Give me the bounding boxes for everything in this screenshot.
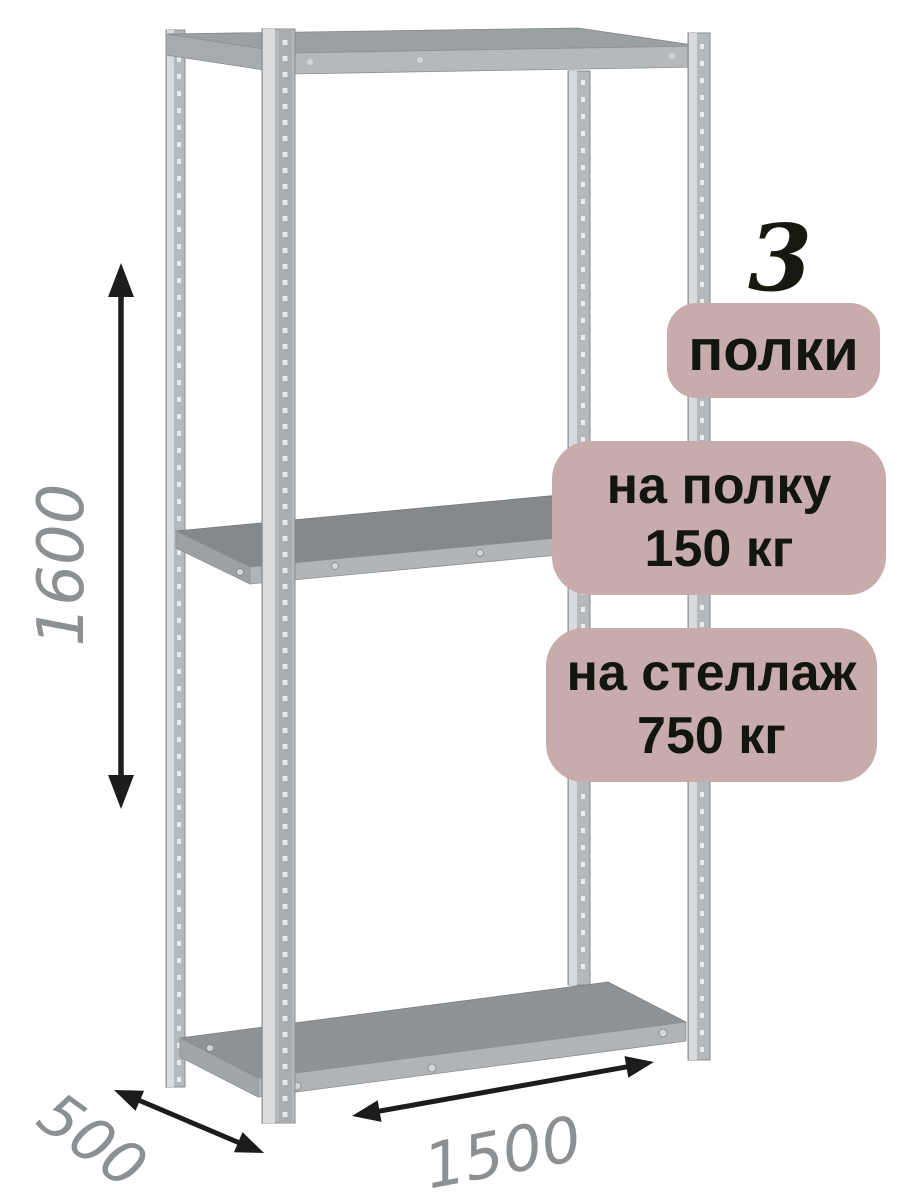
shelf-count-label: полки (688, 317, 859, 384)
height-dimension-label: 1600 (25, 455, 99, 675)
shelf-load-line1: на полку (607, 455, 832, 518)
product-image: 3 полки на полку 150 кг на стеллаж 750 к… (0, 0, 900, 1200)
rack-load-line2: 750 кг (637, 705, 786, 768)
rack-illustration (0, 0, 900, 1200)
rack-post-back-left (166, 30, 185, 1087)
shelf-bottom (180, 982, 686, 1097)
rack-load-badge: на стеллаж 750 кг (546, 628, 877, 782)
height-arrow-icon (108, 263, 134, 809)
shelf-count-number: 3 (735, 206, 825, 311)
shelf-load-line2: 150 кг (645, 518, 794, 581)
shelf-count-badge: полки (667, 303, 880, 398)
rack-post-front-left (262, 29, 295, 1123)
shelf-load-badge: на полку 150 кг (552, 441, 886, 595)
rack-load-line1: на стеллаж (567, 642, 857, 705)
shelf-top (166, 28, 700, 74)
